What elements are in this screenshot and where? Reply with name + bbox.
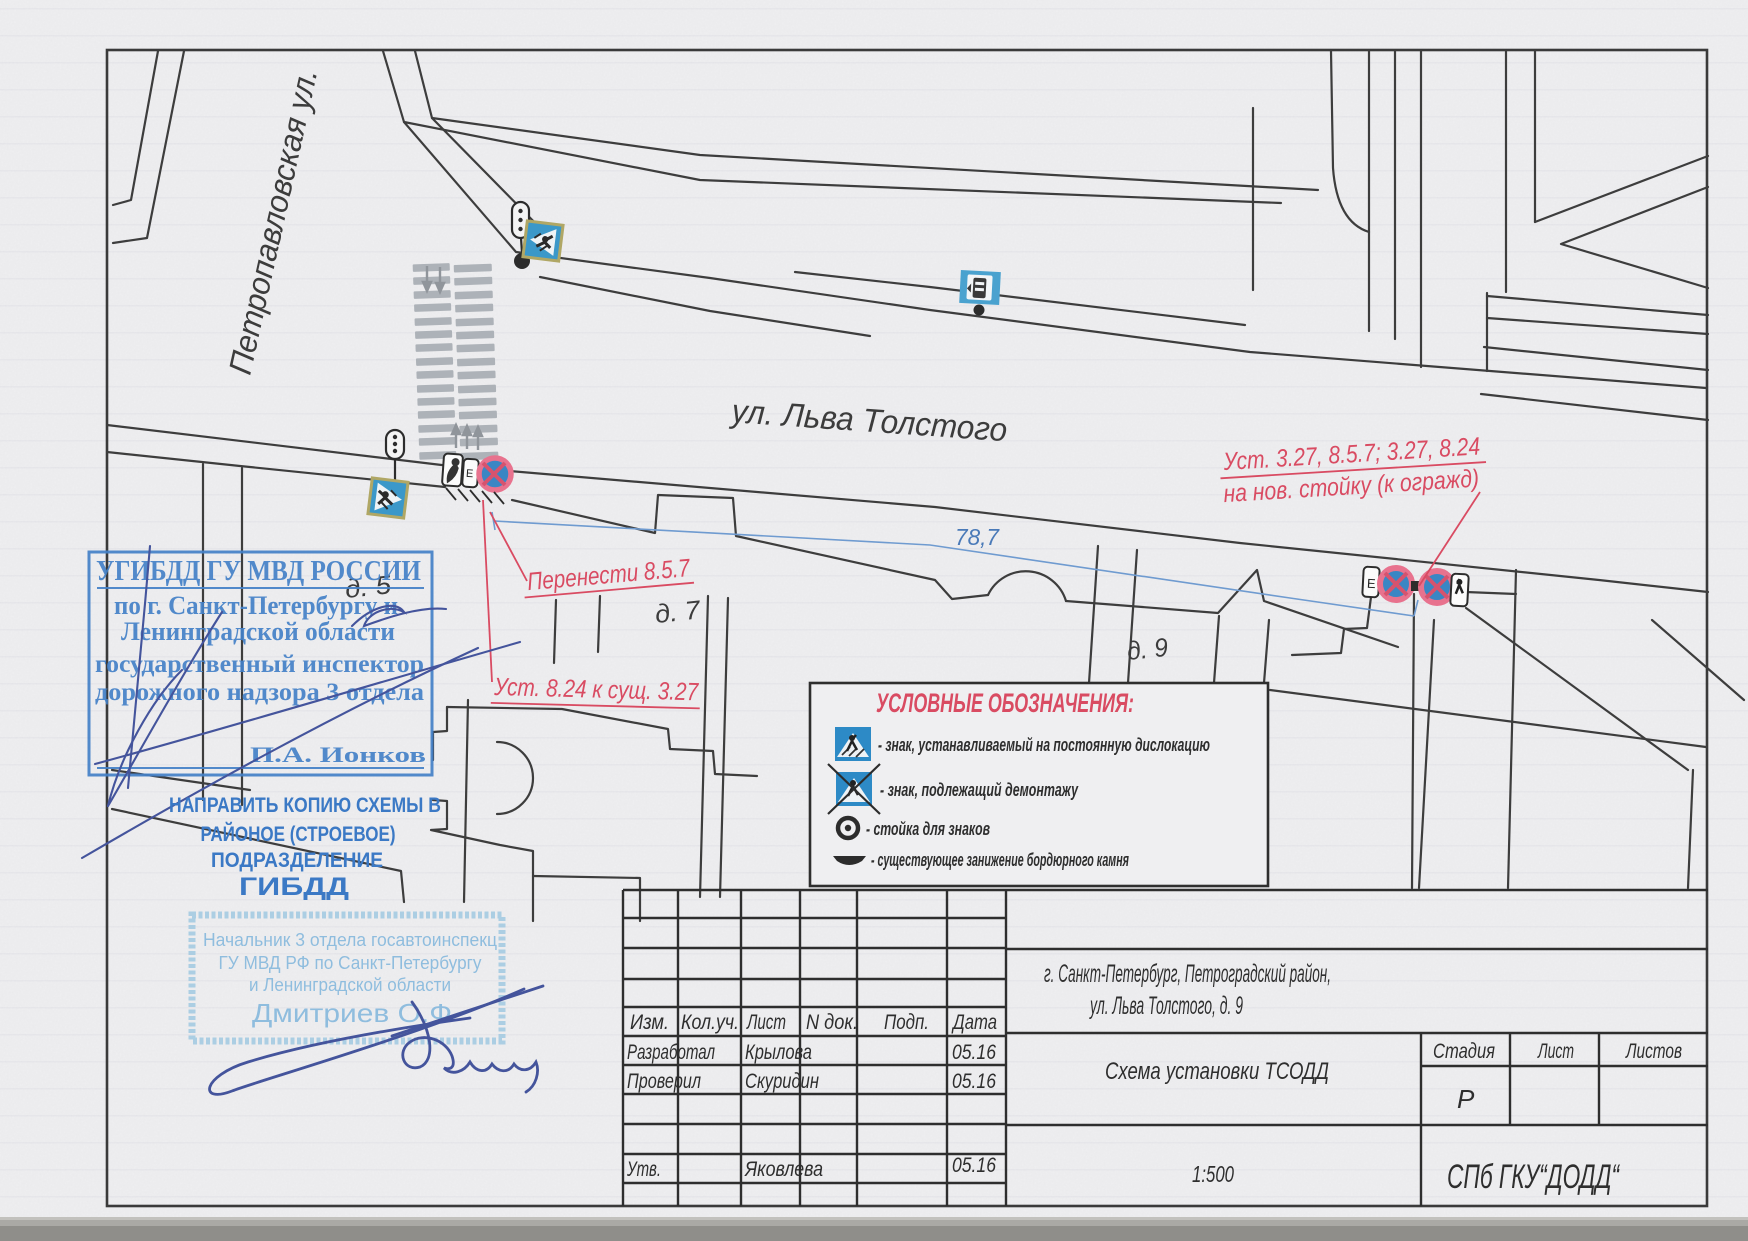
svg-text:СПб ГКУ“ДОДД“: СПб ГКУ“ДОДД“ [1447, 1158, 1620, 1196]
svg-text:д. 7: д. 7 [653, 594, 702, 629]
svg-text:ул. Льва Толстого, д. 9: ул. Льва Толстого, д. 9 [1089, 992, 1243, 1020]
svg-text:Начальник 3 отдела госавтоинс: Начальник 3 отдела госавтоинспекц [203, 930, 497, 950]
svg-text:ПОДРАЗДЕЛЕНИЕ: ПОДРАЗДЕЛЕНИЕ [211, 849, 383, 872]
svg-text:05.16: 05.16 [952, 1041, 996, 1064]
svg-text:Кол.уч.: Кол.уч. [681, 1011, 739, 1034]
svg-text:Дата: Дата [951, 1011, 997, 1034]
svg-text:Р: Р [1457, 1084, 1475, 1114]
svg-text:1:500: 1:500 [1192, 1161, 1234, 1187]
svg-text:78,7: 78,7 [955, 524, 1000, 550]
svg-text:E: E [1367, 576, 1377, 591]
svg-text:и Ленинградской области: и Ленинградской области [249, 975, 451, 995]
svg-text:Крылова: Крылова [745, 1041, 812, 1064]
svg-text:- существующее занижение бордю: - существующее занижение бордюрного камн… [871, 850, 1129, 870]
svg-text:Подп.: Подп. [884, 1011, 929, 1034]
svg-text:РАЙОНОЕ (СТРОЕВОЕ): РАЙОНОЕ (СТРОЕВОЕ) [201, 822, 396, 846]
svg-text:- знак, устанавливаемый на пос: - знак, устанавливаемый на постоянную ди… [878, 735, 1210, 755]
svg-text:N док.: N док. [806, 1011, 858, 1034]
svg-text:Схема установки ТСОДД: Схема установки ТСОДД [1105, 1058, 1329, 1085]
svg-text:Е: Е [466, 468, 474, 480]
svg-text:Ленинградской области: Ленинградской области [121, 617, 395, 646]
svg-text:05.16: 05.16 [952, 1070, 996, 1093]
svg-text:УСЛОВНЫЕ ОБОЗНАЧЕНИЯ:: УСЛОВНЫЕ ОБОЗНАЧЕНИЯ: [876, 688, 1134, 718]
svg-text:ГУ МВД РФ по Санкт-Петербургу: ГУ МВД РФ по Санкт-Петербургу [219, 953, 482, 973]
svg-text:Скуридин: Скуридин [745, 1070, 819, 1093]
svg-text:Уст. 8.24 к сущ. 3.27: Уст. 8.24 к сущ. 3.27 [493, 673, 699, 706]
svg-text:УГИБДД ГУ МВД РОССИИ: УГИБДД ГУ МВД РОССИИ [96, 555, 421, 587]
svg-text:- знак, подлежащий демонтажу: - знак, подлежащий демонтажу [880, 780, 1079, 800]
svg-text:Лист: Лист [1537, 1040, 1574, 1063]
svg-text:Лист: Лист [746, 1011, 786, 1034]
svg-text:Стадия: Стадия [1433, 1040, 1495, 1063]
svg-text:Изм.: Изм. [630, 1011, 669, 1034]
svg-text:Разработал: Разработал [627, 1041, 715, 1064]
svg-text:д. 9: д. 9 [1125, 632, 1169, 666]
svg-text:государственный инспектор: государственный инспектор [95, 651, 424, 678]
svg-text:Утв.: Утв. [626, 1158, 661, 1181]
svg-text:НАПРАВИТЬ КОПИЮ СХЕМЫ В: НАПРАВИТЬ КОПИЮ СХЕМЫ В [169, 794, 441, 817]
svg-text:г. Санкт-Петербург, Петрогра: г. Санкт-Петербург, Петроградский район, [1044, 960, 1331, 988]
svg-text:П.А. Ионков: П.А. Ионков [250, 742, 426, 767]
svg-text:по г. Санкт-Петербургу и: по г. Санкт-Петербургу и [114, 591, 398, 620]
svg-text:Дмитриев О.Ф: Дмитриев О.Ф [252, 998, 452, 1028]
svg-text:Листов: Листов [1625, 1040, 1682, 1063]
svg-text:Проверил: Проверил [627, 1070, 701, 1093]
svg-text:- стойка для знаков: - стойка для знаков [866, 819, 990, 839]
svg-text:Яковлева: Яковлева [744, 1158, 823, 1181]
svg-text:05.16: 05.16 [952, 1154, 996, 1177]
svg-text:ГИБДД: ГИБДД [239, 873, 349, 901]
